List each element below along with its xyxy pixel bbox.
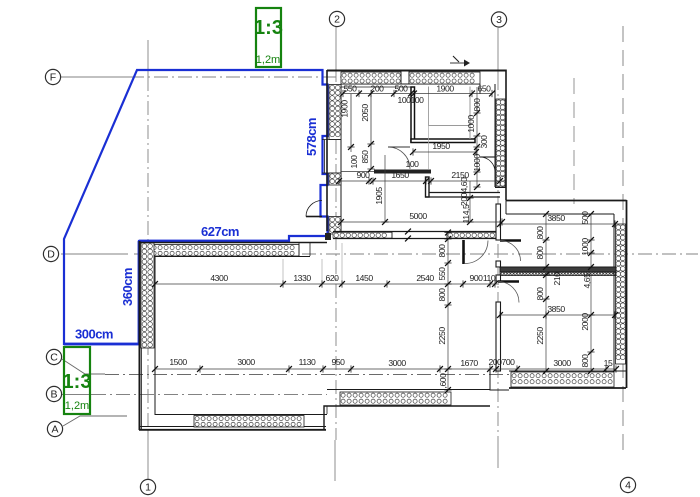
svg-text:2250: 2250 (535, 327, 545, 345)
svg-text:800: 800 (437, 288, 447, 302)
svg-text:550: 550 (344, 84, 358, 94)
svg-text:800: 800 (580, 354, 590, 368)
svg-text:360cm: 360cm (120, 268, 135, 306)
svg-text:100: 100 (349, 155, 359, 169)
svg-text:,600: ,600 (438, 373, 448, 389)
svg-text:1:3: 1:3 (254, 17, 283, 39)
svg-text:3000: 3000 (237, 357, 255, 367)
svg-text:950: 950 (332, 357, 346, 367)
svg-text:A: A (51, 424, 58, 436)
svg-text:4300: 4300 (210, 273, 228, 283)
svg-text:3000: 3000 (553, 358, 571, 368)
svg-text:100: 100 (406, 159, 420, 169)
svg-text:F: F (50, 72, 56, 84)
svg-text:700: 700 (502, 357, 516, 367)
svg-text:110: 110 (483, 273, 496, 283)
svg-text:500: 500 (580, 211, 590, 225)
svg-text:1330: 1330 (293, 273, 311, 283)
svg-text:1950: 1950 (432, 141, 450, 151)
svg-text:1,2m: 1,2m (65, 400, 89, 412)
svg-text:200: 200 (371, 84, 385, 94)
svg-text:550: 550 (437, 267, 447, 281)
svg-text:2: 2 (334, 14, 340, 26)
svg-text:1670: 1670 (460, 358, 478, 368)
svg-text:2050: 2050 (360, 104, 370, 122)
svg-text:200: 200 (459, 192, 469, 206)
svg-text:5000: 5000 (409, 211, 427, 221)
svg-text:900: 900 (357, 170, 371, 180)
svg-text:4,60: 4,60 (459, 177, 469, 193)
svg-text:1905: 1905 (374, 187, 384, 205)
svg-text:C: C (50, 352, 58, 364)
svg-text:900: 900 (470, 273, 484, 283)
svg-text:B: B (50, 389, 57, 401)
svg-text:620: 620 (326, 273, 340, 283)
svg-text:1,2m: 1,2m (256, 54, 280, 66)
svg-text:3850: 3850 (547, 304, 565, 314)
svg-text:300: 300 (479, 135, 489, 149)
svg-text:15: 15 (604, 358, 613, 368)
svg-text:1000: 1000 (580, 238, 590, 256)
svg-text:578cm: 578cm (304, 118, 319, 156)
svg-text:1000: 1000 (466, 115, 476, 133)
svg-text:1:3: 1:3 (63, 371, 92, 393)
svg-text:114,5: 114,5 (461, 204, 471, 223)
svg-text:1130: 1130 (299, 357, 316, 367)
svg-text:1000: 1000 (472, 154, 482, 172)
svg-text:4,65: 4,65 (582, 273, 592, 289)
svg-text:850: 850 (360, 150, 370, 164)
svg-text:627cm: 627cm (201, 224, 239, 239)
svg-text:800: 800 (472, 98, 482, 112)
svg-text:800: 800 (437, 244, 447, 258)
svg-text:3000: 3000 (388, 358, 406, 368)
svg-text:200: 200 (489, 357, 503, 367)
svg-text:1900: 1900 (340, 100, 350, 118)
svg-text:500: 500 (395, 84, 409, 94)
svg-text:800: 800 (535, 246, 545, 260)
svg-text:650: 650 (478, 84, 492, 94)
svg-text:2000: 2000 (580, 313, 590, 331)
svg-text:4: 4 (625, 480, 631, 492)
svg-text:2540: 2540 (416, 273, 434, 283)
svg-text:D: D (47, 249, 55, 261)
svg-text:3850: 3850 (547, 213, 565, 223)
svg-text:800: 800 (535, 287, 545, 301)
svg-text:210: 210 (552, 272, 562, 286)
svg-text:1: 1 (145, 482, 151, 494)
svg-text:1650: 1650 (391, 170, 409, 180)
svg-text:1900: 1900 (436, 84, 454, 94)
svg-text:100: 100 (398, 95, 412, 105)
svg-text:100: 100 (411, 95, 425, 105)
svg-text:3: 3 (496, 14, 502, 26)
svg-text:800: 800 (535, 226, 545, 240)
svg-text:1500: 1500 (169, 357, 187, 367)
svg-text:1450: 1450 (355, 273, 373, 283)
svg-text:2250: 2250 (437, 327, 447, 345)
svg-text:300cm: 300cm (75, 327, 113, 342)
